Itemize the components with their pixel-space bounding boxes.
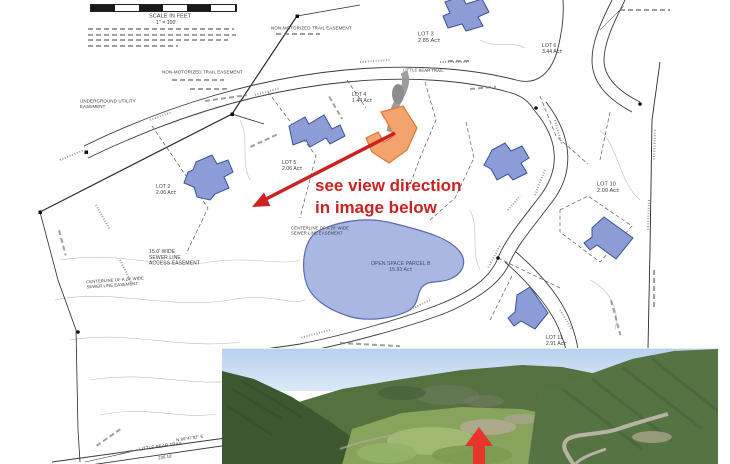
road-label-main: LITTLE BEAR TRAIL (403, 68, 444, 74)
terrain-photo-image (222, 349, 718, 464)
lot-label: LOT 112.91 Ac± (546, 335, 566, 347)
scale-bar (90, 4, 237, 12)
illegible-text (172, 79, 224, 81)
illegible-text (653, 270, 655, 310)
terrain-photo (222, 348, 718, 464)
lot-label: LOT 41.44 Ac± (352, 92, 372, 104)
scale-ratio: 1" = 100' (156, 20, 176, 26)
lot-label: LOT 63.44 Ac± (542, 43, 562, 55)
sewer-access-easement-label: 15.0' WIDE SEWER LINE ACCESS EASEMENT (149, 249, 200, 266)
lot-label: LOT 22.06 Ac± (156, 184, 176, 196)
sewer-centerline-label: CENTERLINE OF A 20' WIDE SEWER LINE EASE… (291, 226, 349, 236)
underground-easement-label: UNDERGROUND UTILITY EASEMENT (80, 99, 136, 109)
lot-label: LOT 32.85 Ac± (418, 31, 440, 44)
building-footprint (289, 115, 345, 147)
lot-label: LOT 102.00 Ac± (597, 181, 619, 194)
illegible-text (276, 33, 320, 35)
trail-easement-label-top: NON-MOTORIZED TRAIL EASEMENT (271, 26, 352, 31)
open-space-label: OPEN SPACE PARCEL B15.93 Ac± (371, 261, 431, 273)
plat-map-page: SCALE IN FEET 1" = 100' NON-MOTORIZED TR… (0, 0, 730, 464)
illegible-text (620, 9, 670, 11)
annotation-text: see view direction in image below (315, 175, 461, 219)
building-footprint (184, 155, 233, 200)
scale-label: SCALE IN FEET (149, 13, 191, 19)
trail-easement-label-left: NON-MOTORIZED TRAIL EASEMENT (162, 70, 243, 75)
illegible-text (448, 60, 472, 62)
building-footprint (484, 143, 529, 180)
building-footprint (508, 287, 548, 329)
building-footprint (584, 217, 633, 259)
illegible-text (190, 88, 230, 90)
lot-label: LOT 52.06 Ac± (282, 160, 302, 172)
building-footprint (443, 0, 489, 31)
survey-notes-text (88, 28, 236, 50)
